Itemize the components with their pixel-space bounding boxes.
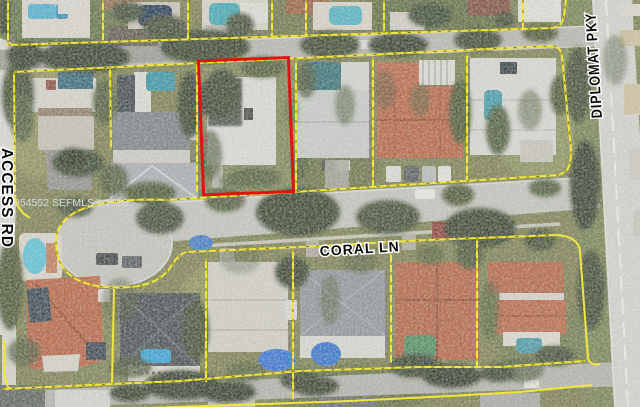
- svg-text:ACCESS RD: ACCESS RD: [0, 148, 15, 248]
- svg-text:954552 SEFMLS© 2026: 954552 SEFMLS© 2026: [14, 197, 128, 209]
